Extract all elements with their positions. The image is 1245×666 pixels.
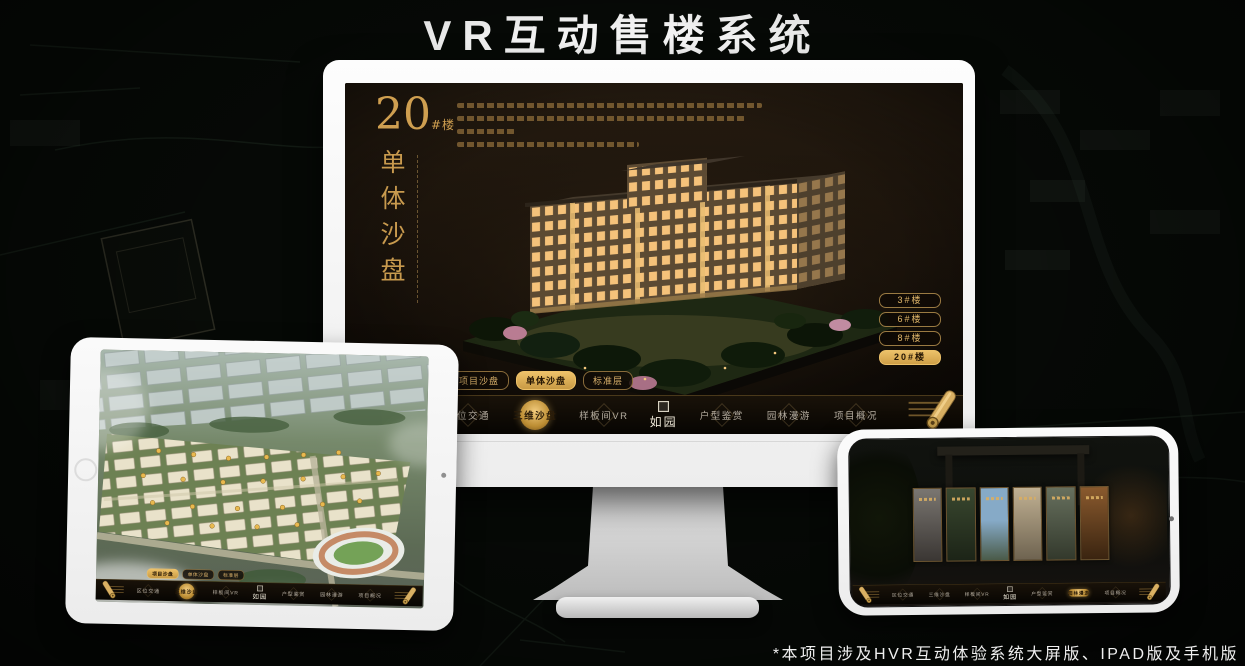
view-tabs: 项目沙盘 单体沙盘 标准层 [449, 371, 633, 390]
phone-device: 区位交通 三维沙盘 样板间VR 如园 户型鉴赏 园林漫游 项目概况 [837, 426, 1180, 616]
gallery-panel[interactable] [946, 487, 976, 561]
phone-screen: 区位交通 三维沙盘 样板间VR 如园 户型鉴赏 园林漫游 项目概况 [848, 435, 1171, 607]
scroll-icon[interactable] [393, 586, 418, 607]
headline-subtitle: 单体沙盘 [373, 149, 409, 293]
gallery-panel[interactable] [979, 487, 1009, 561]
floor-button-6[interactable]: 6#楼 [879, 312, 941, 327]
nav-item-location-traffic[interactable]: 区位交通 [136, 580, 161, 601]
footnote: *本项目涉及HVR互动体验系统大屏版、IPAD版及手机版 [773, 640, 1239, 664]
floor-button-20[interactable]: 20#楼 [879, 350, 941, 365]
gallery-panel[interactable] [1079, 486, 1109, 560]
headline-rule [417, 155, 418, 303]
page-title: VR互动售楼系统 [0, 2, 1245, 63]
building-number: 20 [375, 89, 431, 140]
intro-line [457, 103, 762, 108]
tab-standard-floor[interactable]: 标准层 [583, 371, 633, 390]
aerial-masterplan-render [96, 350, 429, 609]
gallery-panel[interactable] [1046, 486, 1076, 560]
gallery-panel[interactable] [1013, 487, 1043, 561]
panel-label [1085, 496, 1102, 499]
floor-button-3[interactable]: 3#楼 [879, 293, 941, 308]
tab-single-sandbox[interactable]: 单体沙盘 [516, 371, 576, 390]
nav-item-garden-roam[interactable]: 园林漫游 [1067, 583, 1090, 602]
nav-item-floorplans[interactable]: 户型鉴赏 [281, 583, 306, 604]
building-number-suffix: #楼 [431, 118, 455, 132]
scene-gallery [913, 486, 1110, 562]
gallery-panel[interactable] [913, 488, 943, 562]
monitor-stand-base [556, 597, 759, 618]
panel-label [985, 497, 1002, 500]
intro-paragraph [457, 103, 762, 155]
nav-item-floorplans[interactable]: 户型鉴赏 [699, 396, 745, 434]
nav-item-3d-sandbox[interactable]: 三维沙盘 [928, 585, 951, 604]
foliage-silhouette [848, 435, 923, 603]
nav-item-project-overview[interactable]: 项目概况 [833, 396, 879, 434]
intro-line [457, 142, 639, 147]
seal-icon [257, 585, 263, 591]
gate-beam [937, 445, 1089, 456]
bottom-navbar: 区位交通 三维沙盘 样板间VR 如园 户型鉴赏 园林漫游 项目概况 [853, 582, 1166, 605]
nav-item-garden-roam[interactable]: 园林漫游 [766, 396, 812, 434]
brand-logo: 如园 [252, 585, 267, 601]
nav-item-project-overview[interactable]: 项目概况 [1104, 583, 1127, 602]
stage: VR互动售楼系统 [0, 0, 1245, 666]
panel-label [919, 498, 936, 501]
nav-item-location-traffic[interactable]: 区位交通 [891, 585, 914, 604]
nav-item-project-overview[interactable]: 项目概况 [358, 585, 383, 606]
view-tabs: 项目沙盘 单体沙盘 标准层 [147, 568, 245, 580]
intro-line [457, 129, 515, 134]
floor-button-8[interactable]: 8#楼 [879, 331, 941, 346]
headline-building-number: 20#楼 [375, 93, 455, 137]
nav-item-3d-sandbox[interactable]: 三维沙盘 [174, 581, 199, 602]
scroll-icon[interactable] [1138, 582, 1161, 601]
ipad-screen: 项目沙盘 单体沙盘 标准层 区位交通 三维沙盘 样板 [96, 350, 429, 609]
floor-selector: 3#楼 6#楼 8#楼 20#楼 [879, 293, 941, 365]
scroll-icon[interactable] [858, 585, 881, 604]
scroll-icon[interactable] [905, 388, 959, 432]
phone-app-chrome: 区位交通 三维沙盘 样板间VR 如园 户型鉴赏 园林漫游 项目概况 [853, 582, 1166, 605]
nav-item-garden-roam[interactable]: 园林漫游 [319, 584, 344, 605]
tab-single-sandbox[interactable]: 单体沙盘 [182, 569, 214, 580]
panel-label [952, 497, 969, 500]
ipad-device: 项目沙盘 单体沙盘 标准层 区位交通 三维沙盘 样板 [65, 337, 459, 631]
tab-project-sandbox[interactable]: 项目沙盘 [147, 568, 179, 579]
panel-label [1019, 497, 1036, 500]
home-button[interactable] [74, 458, 97, 481]
panel-label [1052, 496, 1069, 499]
camera-icon [1169, 516, 1174, 521]
nav-item-3d-sandbox[interactable]: 三维沙盘 [512, 396, 558, 434]
scroll-icon[interactable] [101, 580, 126, 601]
nav-item-model-room-vr[interactable]: 样板间VR [212, 582, 238, 603]
seal-icon [658, 401, 669, 412]
brand-logo: 如园 [650, 401, 678, 430]
seal-icon [1007, 586, 1013, 592]
tab-standard-floor[interactable]: 标准层 [218, 570, 245, 581]
brand-logo: 如园 [1003, 586, 1017, 601]
camera-icon [441, 473, 446, 478]
intro-line [457, 116, 745, 121]
nav-item-model-room-vr[interactable]: 样板间VR [579, 396, 628, 434]
nav-item-floorplans[interactable]: 户型鉴赏 [1031, 584, 1054, 603]
nav-item-model-room-vr[interactable]: 样板间VR [965, 584, 990, 603]
